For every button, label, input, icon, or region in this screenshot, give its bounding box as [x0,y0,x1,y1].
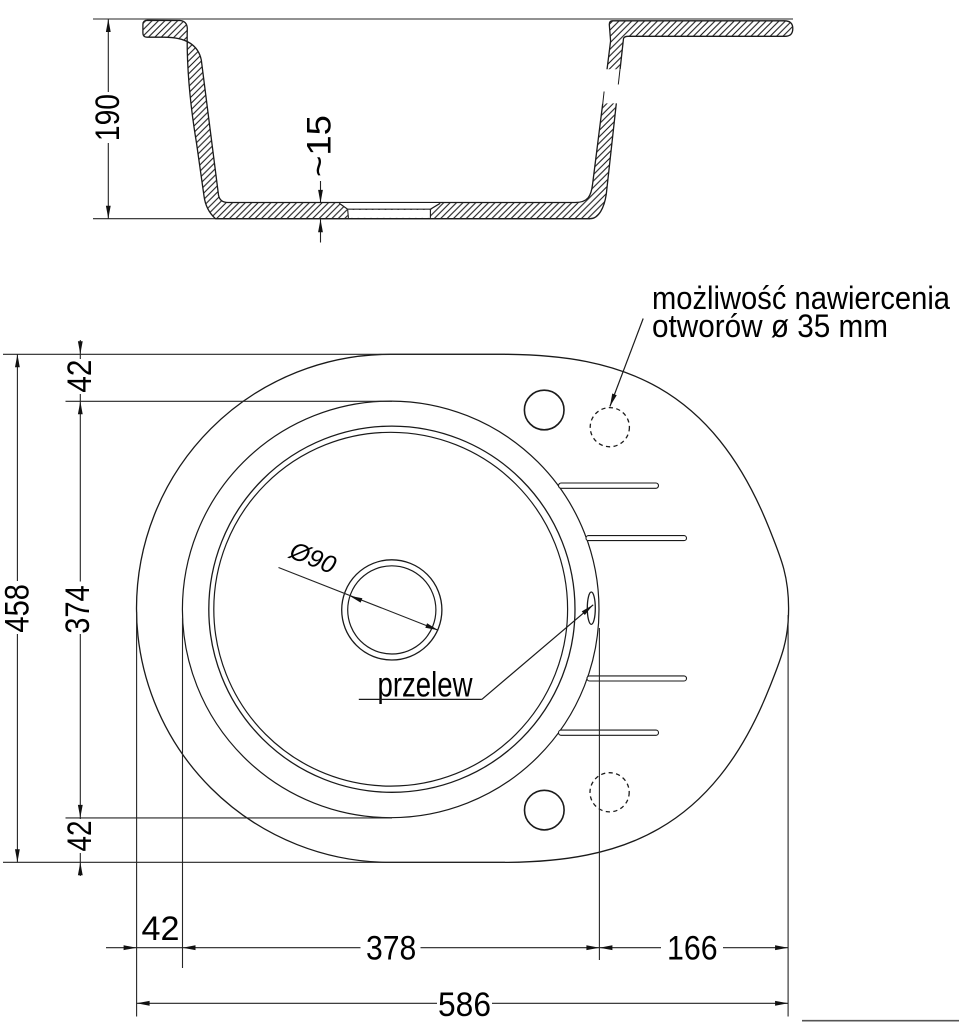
svg-text:~15: ~15 [301,115,339,177]
svg-text:42: 42 [61,821,99,852]
svg-text:190: 190 [89,94,127,141]
svg-text:42: 42 [61,360,99,393]
svg-text:42: 42 [142,910,180,948]
svg-text:otworów ø 35 mm: otworów ø 35 mm [652,308,888,344]
svg-text:378: 378 [366,930,416,968]
svg-text:166: 166 [667,930,718,968]
svg-text:586: 586 [438,986,491,1023]
svg-text:374: 374 [59,585,97,634]
svg-text:458: 458 [0,584,36,633]
